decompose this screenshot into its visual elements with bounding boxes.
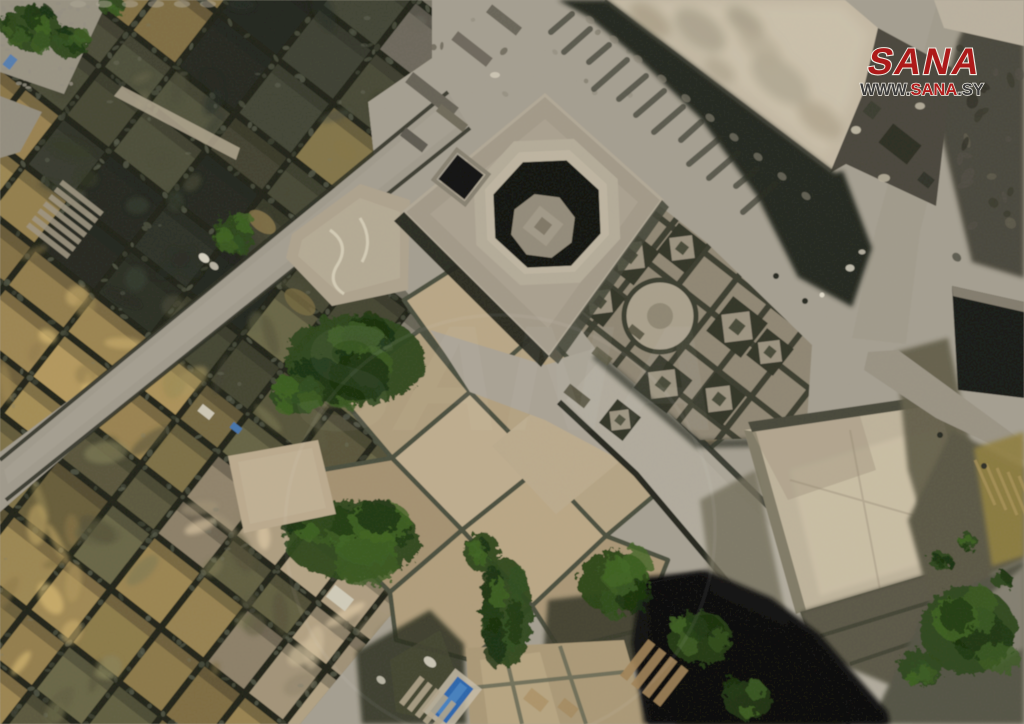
svg-text:SANA: SANA: [864, 40, 986, 82]
svg-text:WWW.SANA.SY: WWW.SANA.SY: [860, 81, 984, 99]
